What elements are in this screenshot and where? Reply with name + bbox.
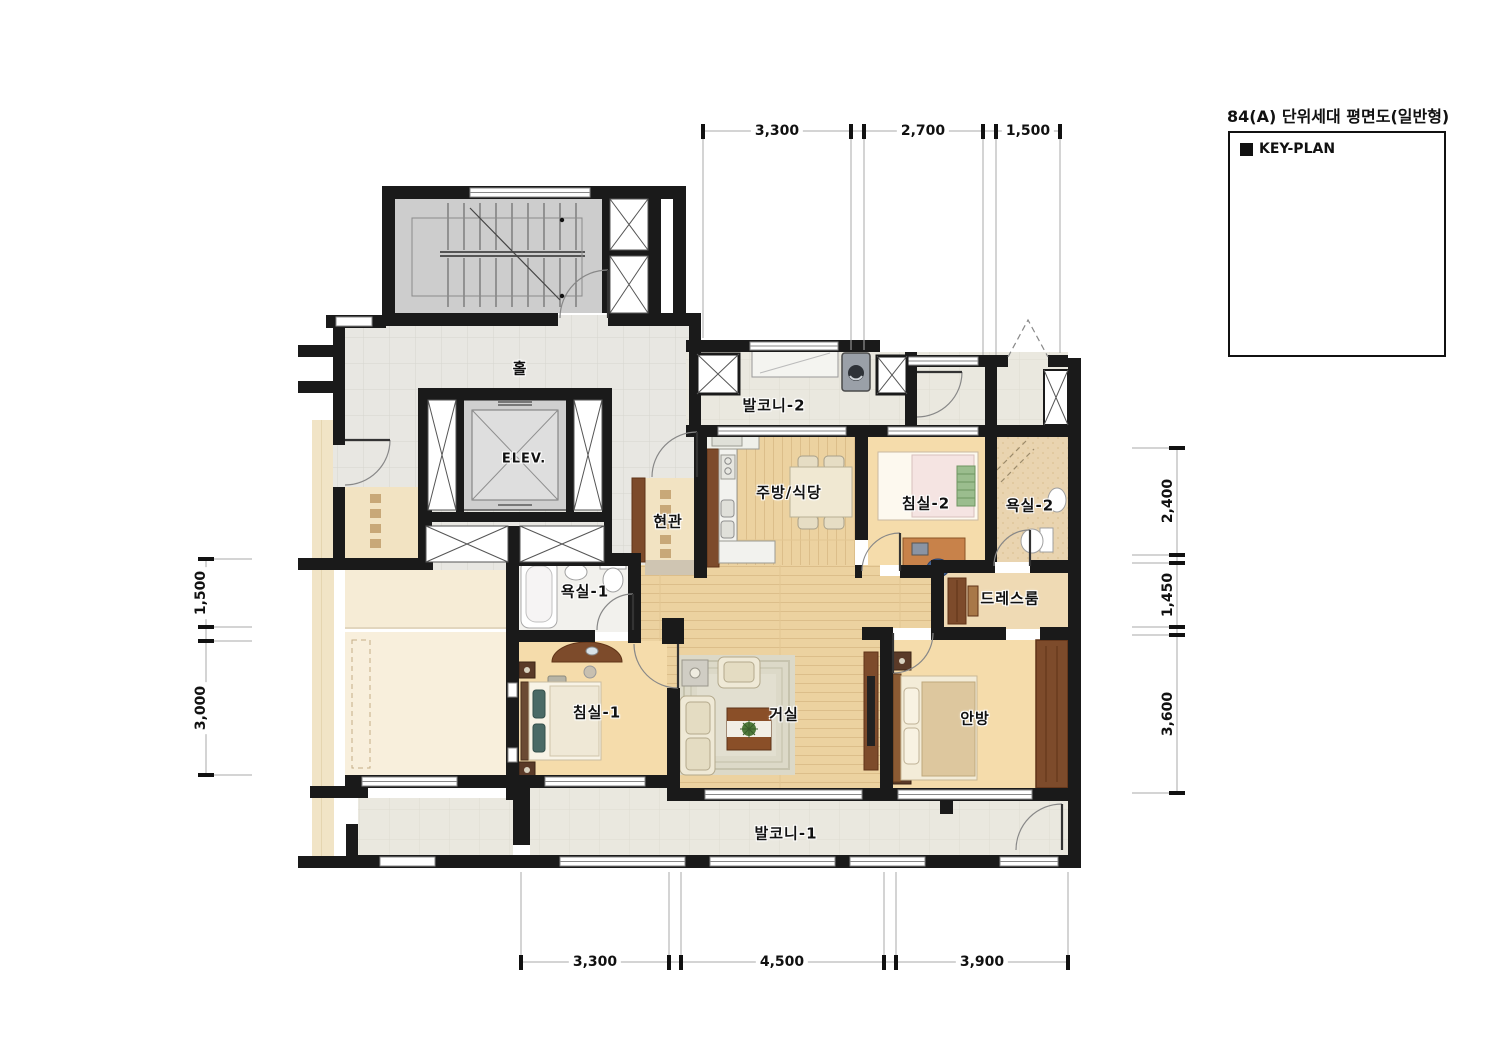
room-label-dressroom: 드레스룸 — [980, 588, 1039, 609]
room-label-kitchen-dining: 주방/식당 — [756, 482, 822, 503]
dim-right-1: 2,400 — [1160, 475, 1176, 527]
dim-right-3: 3,600 — [1160, 688, 1176, 740]
room-label-bedroom2: 침실-2 — [902, 493, 950, 514]
room-label-bathroom1: 욕실-1 — [561, 581, 609, 602]
dim-right-2: 1,450 — [1160, 569, 1176, 621]
floor-plan-page: 84(A) 단위세대 평면도(일반형) KEY-PLAN 홀 ELEV. 현관 … — [0, 0, 1502, 1063]
dim-left-2: 3,000 — [193, 682, 209, 734]
dim-left-1: 1,500 — [193, 567, 209, 619]
dim-top-2: 2,700 — [897, 123, 949, 139]
room-label-elevator: ELEV. — [502, 452, 546, 467]
key-plan-label: KEY-PLAN — [1259, 141, 1335, 157]
key-plan-header: KEY-PLAN — [1240, 141, 1335, 157]
room-label-hall: 홀 — [513, 358, 528, 379]
dim-top-3: 1,500 — [1002, 123, 1054, 139]
room-label-entrance: 현관 — [653, 511, 683, 532]
room-label-balcony2: 발코니-2 — [742, 395, 805, 416]
dim-bottom-2: 4,500 — [756, 954, 808, 970]
room-label-bathroom2: 욕실-2 — [1006, 495, 1054, 516]
key-plan-box: KEY-PLAN — [1228, 131, 1446, 357]
dim-bottom-1: 3,300 — [569, 954, 621, 970]
dim-top-1: 3,300 — [751, 123, 803, 139]
room-label-living: 거실 — [769, 704, 799, 725]
room-label-master-bedroom: 안방 — [960, 708, 990, 729]
black-square-icon — [1240, 143, 1253, 156]
room-label-balcony1: 발코니-1 — [754, 823, 817, 844]
room-label-bedroom1: 침실-1 — [573, 702, 621, 723]
dim-bottom-3: 3,900 — [956, 954, 1008, 970]
page-title: 84(A) 단위세대 평면도(일반형) — [1227, 103, 1457, 127]
